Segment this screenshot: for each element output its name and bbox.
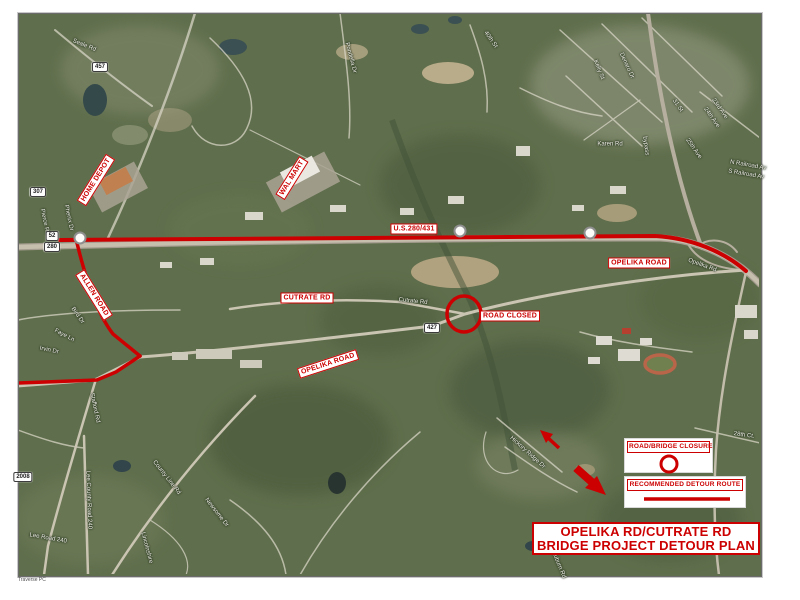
road-closed-label: ROAD CLOSED — [480, 311, 540, 322]
legend-recommended-detour-route: RECOMMENDED DETOUR ROUTE — [625, 477, 745, 507]
legend-detour-line — [630, 491, 740, 505]
route-shield: 427 — [424, 323, 440, 333]
legend-detour-label: RECOMMENDED DETOUR ROUTE — [627, 479, 743, 491]
us-route-shield-icon — [74, 232, 87, 245]
route-shield: 457 — [92, 62, 108, 72]
route-shield: 280 — [44, 242, 60, 252]
cutrate-rd-label: CUTRATE RD — [281, 293, 334, 304]
us-route-shield-icon — [584, 227, 597, 240]
opelika-road-label-east: OPELIKA ROAD — [608, 258, 670, 269]
map-title-line1: OPELIKA RD/CUTRATE RD — [560, 525, 731, 539]
us-route-shield-icon — [454, 225, 467, 238]
legend-closure-label: ROAD/BRIDGE CLOSURE — [627, 441, 710, 453]
street-label: Karen Rd — [597, 142, 622, 149]
route-shield: 52 — [46, 231, 59, 241]
map-title-line2: BRIDGE PROJECT DETOUR PLAN — [537, 539, 755, 553]
detour-plan-map-page: Seale RdPondella Dr40th StKelly StDenaro… — [0, 0, 800, 600]
map-credit: Traverse PC — [18, 577, 46, 583]
route-shield: 307 — [30, 187, 46, 197]
us-280-431-label: U.S.280/431 — [390, 224, 437, 235]
legend-closure-circle — [654, 453, 684, 475]
legend-road-bridge-closure: ROAD/BRIDGE CLOSURE — [625, 439, 712, 472]
map-title-box: OPELIKA RD/CUTRATE RD BRIDGE PROJECT DET… — [532, 522, 760, 555]
route-shield: 2008 — [13, 472, 32, 482]
